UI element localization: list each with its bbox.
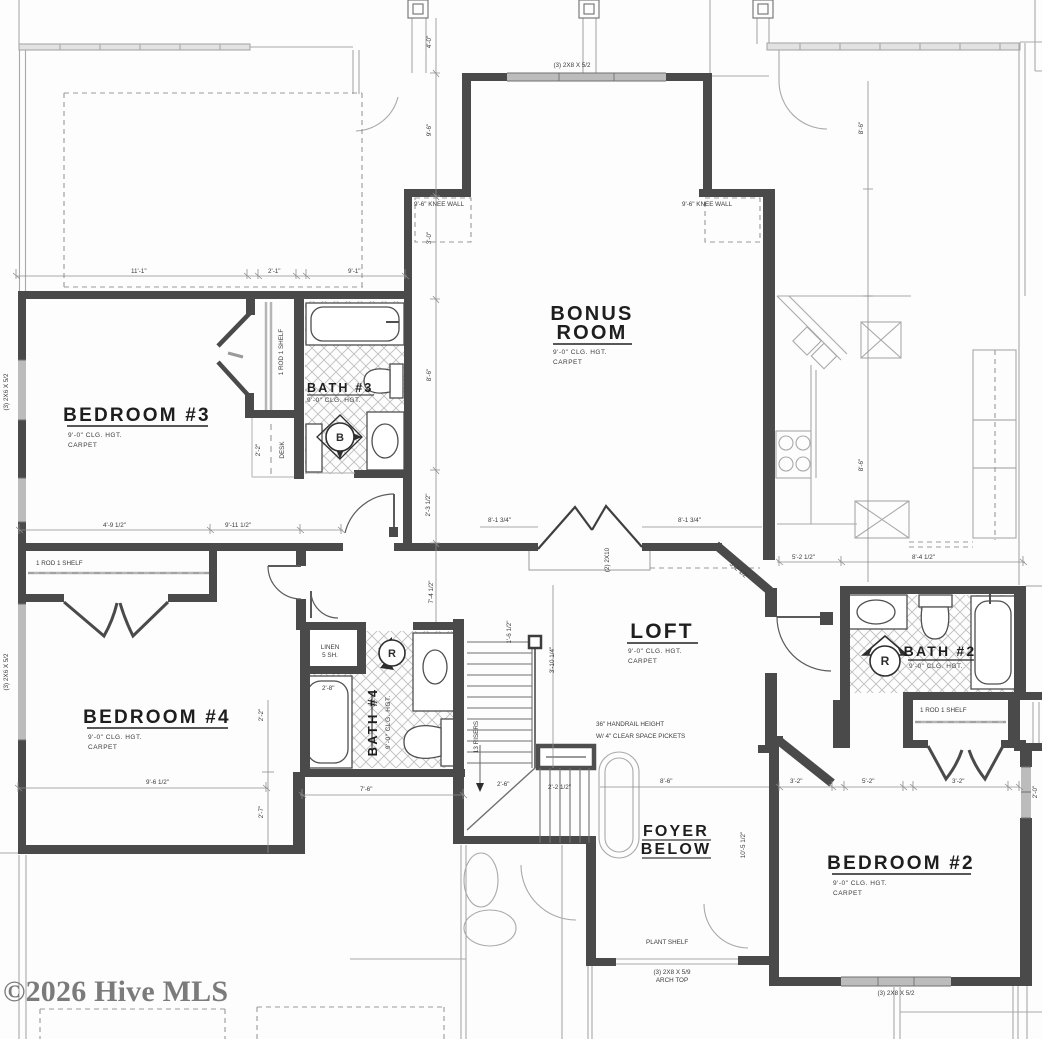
svg-text:CARPET: CARPET (68, 442, 97, 449)
svg-text:1 ROD 1 SHELF: 1 ROD 1 SHELF (36, 560, 83, 567)
svg-text:LINEN: LINEN (321, 644, 340, 651)
svg-text:©2026 Hive MLS: ©2026 Hive MLS (3, 975, 228, 1008)
svg-text:9'-1": 9'-1" (348, 268, 361, 275)
svg-text:9'-6 1/2": 9'-6 1/2" (146, 779, 169, 786)
svg-text:CARPET: CARPET (628, 658, 657, 665)
svg-text:(3) 2X6 X 5/2: (3) 2X6 X 5/2 (3, 653, 10, 691)
svg-text:5 SH.: 5 SH. (322, 652, 338, 659)
svg-text:9'-0" CLG. HGT.: 9'-0" CLG. HGT. (909, 663, 963, 670)
svg-text:2'-6": 2'-6" (497, 781, 510, 788)
svg-text:11'-1": 11'-1" (131, 268, 147, 275)
svg-text:36" HANDRAIL HEIGHT: 36" HANDRAIL HEIGHT (596, 721, 664, 728)
svg-text:BEDROOM #4: BEDROOM #4 (83, 707, 231, 728)
svg-text:4'-0": 4'-0" (426, 36, 433, 49)
svg-text:9'-6" KNEE WALL: 9'-6" KNEE WALL (414, 201, 465, 208)
svg-text:8'-1 3/4": 8'-1 3/4" (488, 517, 511, 524)
svg-text:1'-6 1/2": 1'-6 1/2" (506, 620, 513, 643)
svg-text:2'-2 1/2": 2'-2 1/2" (548, 784, 571, 791)
svg-text:CARPET: CARPET (833, 890, 862, 897)
svg-text:CARPET: CARPET (88, 744, 117, 751)
svg-text:(3) 2X8 X 5/9: (3) 2X8 X 5/9 (653, 969, 691, 976)
svg-text:2'-2": 2'-2" (258, 709, 265, 722)
svg-text:(3) 2X6 X 5/2: (3) 2X6 X 5/2 (3, 373, 10, 411)
svg-text:9'-0" CLG. HGT.: 9'-0" CLG. HGT. (833, 880, 887, 887)
svg-text:8'-6": 8'-6" (426, 369, 433, 382)
svg-text:2'-2": 2'-2" (255, 444, 262, 457)
svg-text:2'-7": 2'-7" (258, 806, 265, 819)
svg-text:(3) 2X8 X 5/2: (3) 2X8 X 5/2 (877, 990, 915, 997)
svg-text:3'-2": 3'-2" (790, 778, 803, 785)
svg-text:9'-0" CLG. HGT.: 9'-0" CLG. HGT. (88, 734, 142, 741)
svg-text:5'-2 1/2": 5'-2 1/2" (792, 554, 815, 561)
svg-text:PLANT SHELF: PLANT SHELF (646, 939, 688, 946)
svg-text:BATH #2: BATH #2 (904, 643, 977, 659)
svg-text:(3) 2X8 X 5/2: (3) 2X8 X 5/2 (553, 62, 591, 69)
svg-text:8'-1 3/4": 8'-1 3/4" (678, 517, 701, 524)
svg-text:BEDROOM #2: BEDROOM #2 (827, 853, 975, 874)
svg-text:9'-0" CLG. HGT.: 9'-0" CLG. HGT. (68, 432, 122, 439)
svg-text:BEDROOM #3: BEDROOM #3 (63, 405, 211, 426)
svg-text:BATH #3: BATH #3 (307, 381, 374, 395)
svg-text:W/ 4" CLEAR SPACE PICKETS: W/ 4" CLEAR SPACE PICKETS (596, 733, 685, 740)
svg-text:9'-0" CLG. HGT.: 9'-0" CLG. HGT. (385, 695, 392, 749)
svg-text:(2) 2X10: (2) 2X10 (604, 547, 611, 572)
svg-text:2'-8": 2'-8" (322, 685, 335, 692)
svg-text:8'-6": 8'-6" (660, 778, 673, 785)
svg-text:2'-0": 2'-0" (1032, 786, 1039, 799)
svg-text:LOFT: LOFT (630, 620, 694, 643)
svg-text:1 ROD 1 SHELF: 1 ROD 1 SHELF (278, 329, 285, 376)
svg-text:R: R (881, 654, 890, 668)
svg-text:9'-6" KNEE WALL: 9'-6" KNEE WALL (682, 201, 733, 208)
svg-text:3'-0": 3'-0" (426, 232, 433, 245)
svg-text:3'-10 1/4": 3'-10 1/4" (549, 647, 556, 674)
svg-text:B: B (336, 432, 344, 444)
svg-text:DESK: DESK (279, 441, 286, 459)
svg-text:10'-5 1/2": 10'-5 1/2" (740, 832, 747, 859)
svg-text:9'-6": 9'-6" (426, 124, 433, 137)
svg-text:8'-6": 8'-6" (858, 459, 865, 472)
svg-text:CARPET: CARPET (553, 359, 582, 366)
svg-text:7'-6": 7'-6" (360, 786, 373, 793)
svg-text:2'-3 1/2": 2'-3 1/2" (425, 493, 432, 516)
svg-text:8'-4 1/2": 8'-4 1/2" (912, 554, 935, 561)
svg-text:13 RISERS: 13 RISERS (473, 721, 480, 753)
svg-text:8'-6": 8'-6" (858, 122, 865, 135)
svg-text:ROOM: ROOM (556, 322, 627, 344)
svg-text:9'-11 1/2": 9'-11 1/2" (225, 522, 251, 529)
svg-text:2'-1": 2'-1" (268, 268, 281, 275)
svg-text:9'-0" CLG. HGT.: 9'-0" CLG. HGT. (553, 349, 607, 356)
svg-text:ARCH TOP: ARCH TOP (656, 977, 688, 984)
svg-text:9'-0" CLG. HGT.: 9'-0" CLG. HGT. (307, 397, 361, 404)
svg-text:FOYER: FOYER (643, 823, 709, 840)
svg-text:1 ROD 1 SHELF: 1 ROD 1 SHELF (920, 707, 967, 714)
svg-text:3'-2": 3'-2" (952, 778, 965, 785)
svg-text:BELOW: BELOW (641, 841, 712, 858)
svg-text:4'-9 1/2": 4'-9 1/2" (103, 522, 126, 529)
svg-text:7'-4 1/2": 7'-4 1/2" (428, 580, 435, 603)
svg-text:5'-2": 5'-2" (862, 778, 875, 785)
svg-text:9'-0" CLG. HGT.: 9'-0" CLG. HGT. (628, 648, 682, 655)
svg-text:R: R (388, 648, 396, 660)
